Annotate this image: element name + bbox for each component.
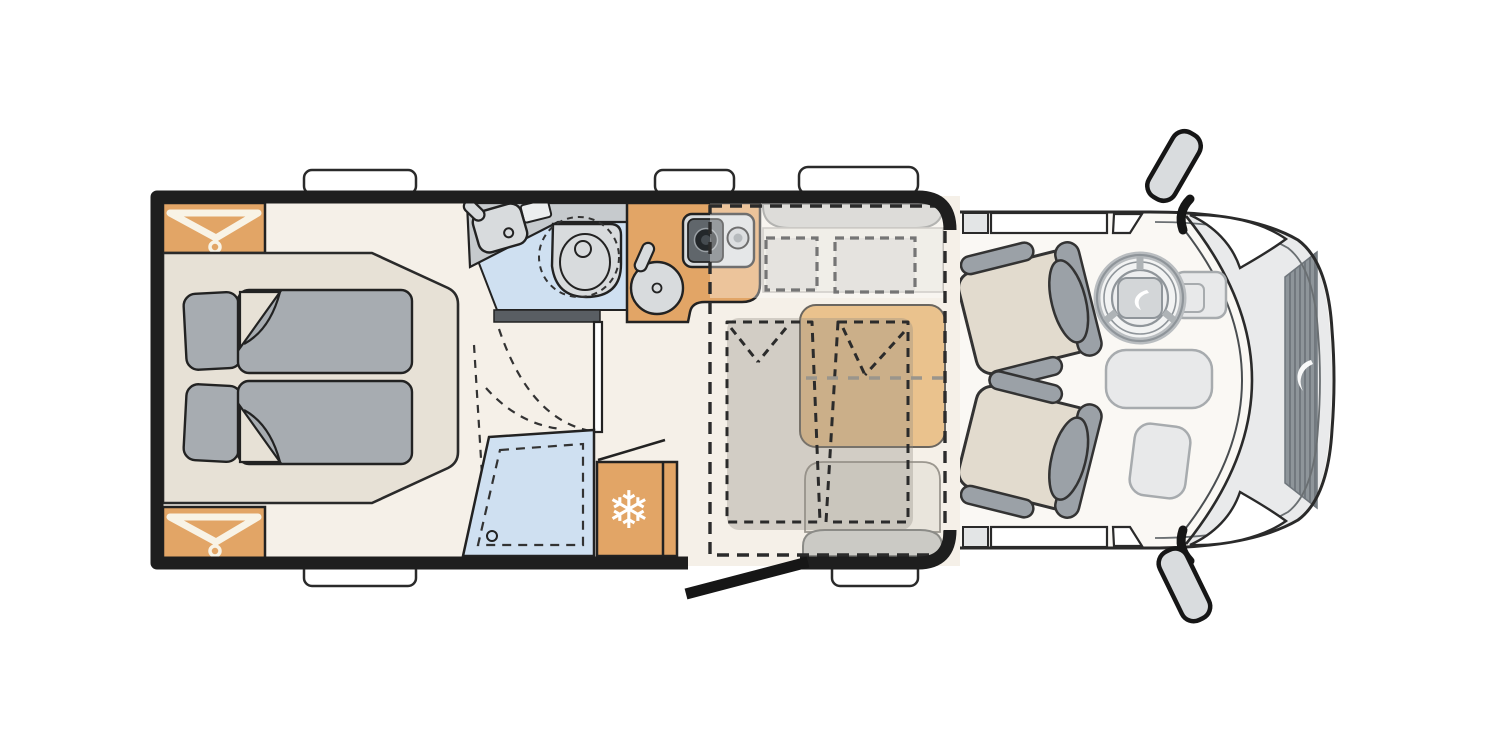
window-kitchen-top — [655, 170, 734, 194]
floorplan-canvas: ❄ — [0, 0, 1500, 750]
lower-console — [1128, 422, 1192, 500]
swivel-toilet — [539, 217, 621, 297]
floorplan-page: ❄ — [0, 0, 1500, 750]
snowflake-icon: ❄ — [607, 481, 651, 541]
bathroom-partition-wall — [494, 310, 600, 322]
center-console — [1106, 350, 1212, 408]
cab-window-top — [991, 213, 1107, 233]
mirror-head — [1143, 126, 1206, 205]
bathroom-door — [594, 322, 602, 432]
entry-door — [686, 562, 808, 594]
dinette — [710, 202, 945, 556]
bench-backrest-bottom — [803, 530, 942, 556]
window-dinette-top — [799, 167, 918, 194]
cab — [951, 212, 1334, 548]
overhead-locker-overlay — [710, 202, 943, 298]
pillow — [183, 384, 242, 463]
cab-window-bottom — [991, 527, 1107, 547]
pillow — [183, 292, 242, 371]
window-bedroom-top — [304, 170, 416, 194]
mirror-head — [1154, 544, 1214, 625]
